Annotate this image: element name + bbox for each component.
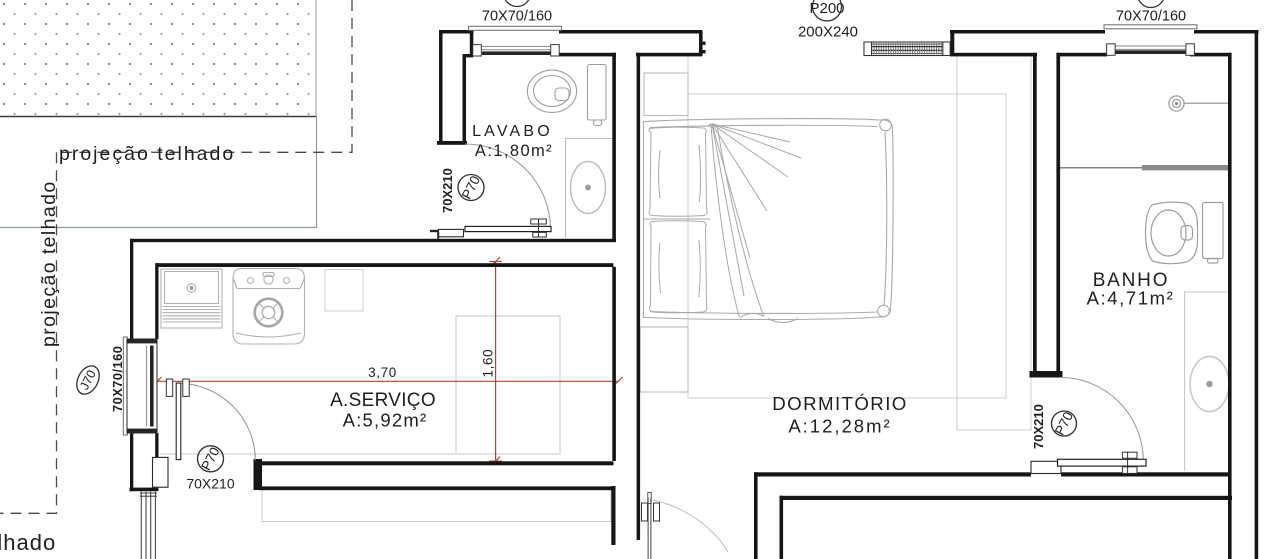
- svg-text:A:5,92m²: A:5,92m²: [343, 410, 428, 431]
- svg-text:P200: P200: [809, 0, 844, 17]
- svg-text:A:12,28m²: A:12,28m²: [788, 416, 891, 437]
- svg-text:A.SERVIÇO: A.SERVIÇO: [330, 390, 436, 411]
- svg-text:projeção telhado: projeção telhado: [59, 143, 235, 165]
- svg-text:DORMITÓRIO: DORMITÓRIO: [772, 393, 907, 414]
- svg-text:A:1,80m²: A:1,80m²: [475, 142, 553, 160]
- svg-text:70X70/160: 70X70/160: [482, 9, 552, 25]
- svg-text:A:4,71m²: A:4,71m²: [1087, 288, 1175, 309]
- svg-text:projeção telhado: projeção telhado: [38, 180, 60, 347]
- svg-text:telhado: telhado: [0, 530, 56, 555]
- svg-text:70X210: 70X210: [440, 168, 455, 213]
- svg-text:70X210: 70X210: [186, 476, 234, 492]
- svg-text:200X240: 200X240: [798, 24, 858, 41]
- svg-text:70X210: 70X210: [1031, 404, 1046, 449]
- svg-text:1,60: 1,60: [481, 349, 496, 378]
- svg-text:3,70: 3,70: [368, 365, 397, 380]
- svg-text:70X70/160: 70X70/160: [1116, 9, 1186, 25]
- svg-text:LAVABO: LAVABO: [472, 123, 553, 140]
- svg-text:70X70/160: 70X70/160: [110, 346, 125, 412]
